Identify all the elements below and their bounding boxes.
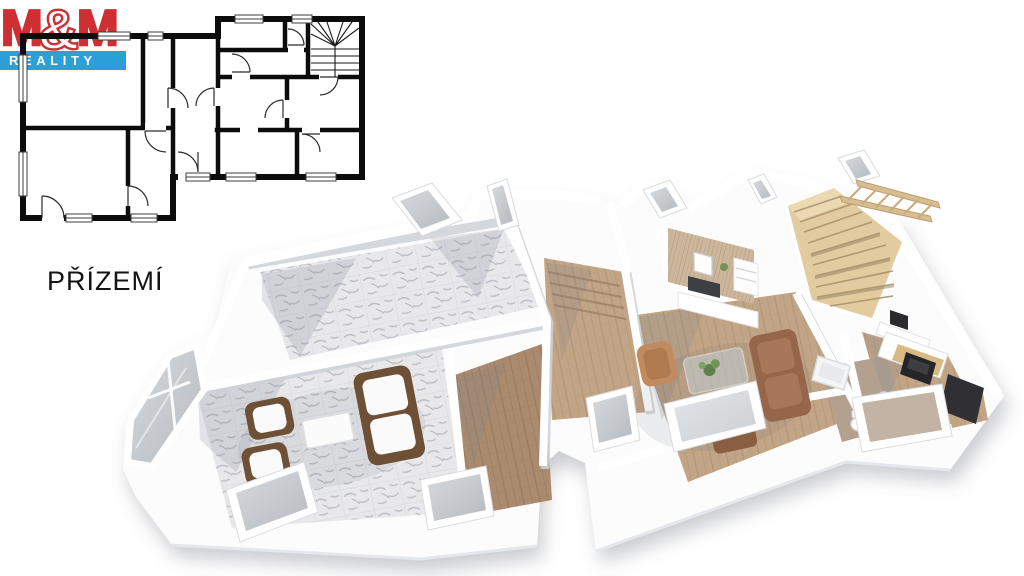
3d-floor-plan xyxy=(123,150,1004,560)
2d-staircase xyxy=(311,22,359,77)
plant-small xyxy=(720,263,728,271)
2d-door-gaps xyxy=(42,45,338,222)
2d-window xyxy=(98,32,130,40)
2d-door-arcs xyxy=(42,29,338,218)
plans-canvas xyxy=(0,0,1024,576)
real-estate-floorplan-page: PŘÍZEMÍ M M & REALITY xyxy=(0,0,1024,576)
2d-floor-plan xyxy=(19,15,362,222)
